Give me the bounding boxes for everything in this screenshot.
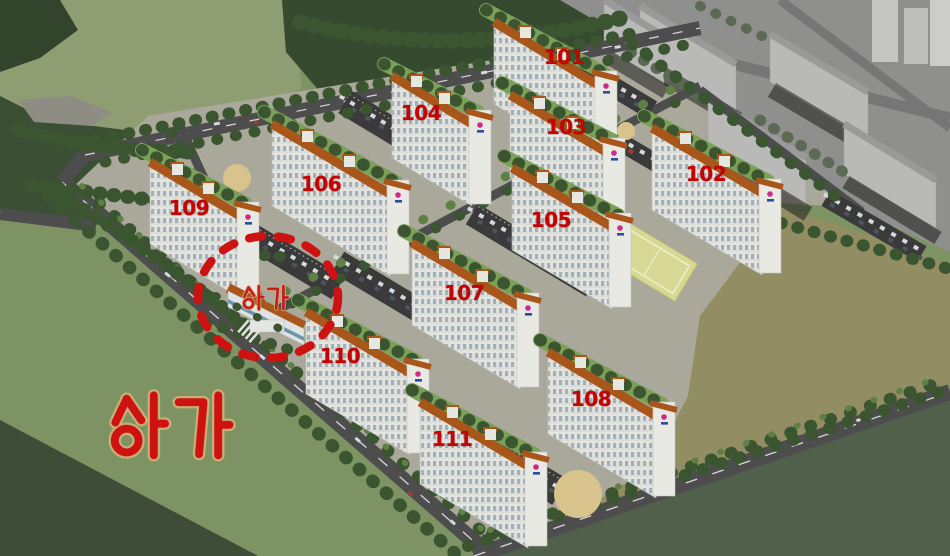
building-label-108: 108 (571, 387, 611, 411)
building-label-104: 104 (401, 101, 441, 125)
site-plan-rendering: 101 102 103 104 105 106 107 108 109 110 … (0, 0, 950, 556)
building-label-101: 101 (544, 45, 584, 69)
playground-4 (617, 122, 635, 140)
building-label-106: 106 (301, 172, 341, 196)
gray-tower-1 (872, 0, 898, 62)
building-label-110: 110 (320, 344, 360, 368)
gray-tower-3 (930, 0, 950, 66)
building-label-102: 102 (686, 162, 726, 186)
playground-2 (554, 470, 602, 518)
building-label-105: 105 (531, 208, 571, 232)
building-label-109: 109 (169, 196, 209, 220)
scene-canvas (0, 0, 950, 556)
building-label-111: 111 (432, 427, 472, 451)
building-label-103: 103 (546, 115, 586, 139)
building-label-107: 107 (444, 281, 484, 305)
gray-tower-2 (904, 8, 928, 64)
